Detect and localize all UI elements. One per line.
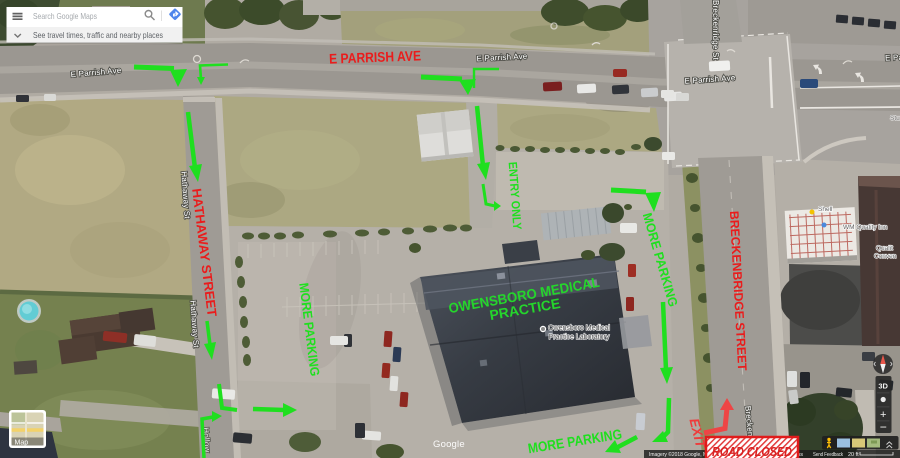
svg-text:WM Quality Inn: WM Quality Inn xyxy=(843,224,888,231)
svg-text:Map: Map xyxy=(15,440,29,447)
svg-text:Conven: Conven xyxy=(874,253,897,260)
svg-text:E Parri: E Parri xyxy=(885,52,900,62)
svg-text:Qualit: Qualit xyxy=(876,245,893,252)
svg-text:Breckenridge St: Breckenridge St xyxy=(711,0,720,60)
svg-text:Practice Laboratory: Practice Laboratory xyxy=(549,334,610,341)
svg-text:Owensboro Medical: Owensboro Medical xyxy=(548,325,610,332)
svg-text:20 ft: 20 ft xyxy=(848,452,859,458)
svg-text:E PARRISH AVE: E PARRISH AVE xyxy=(329,47,422,66)
svg-text:See travel times, traffic and: See travel times, traffic and nearby pla… xyxy=(33,30,163,40)
svg-text:3D: 3D xyxy=(878,382,888,391)
svg-text:Shell: Shell xyxy=(818,206,833,213)
svg-text:ROAD CLOSED: ROAD CLOSED xyxy=(712,444,793,458)
svg-text:Google: Google xyxy=(433,439,465,450)
svg-text:−: − xyxy=(880,420,887,434)
svg-text:Stu: Stu xyxy=(890,115,900,122)
svg-text:Search Google Maps: Search Google Maps xyxy=(33,11,97,21)
svg-text:Send Feedback: Send Feedback xyxy=(813,452,843,458)
